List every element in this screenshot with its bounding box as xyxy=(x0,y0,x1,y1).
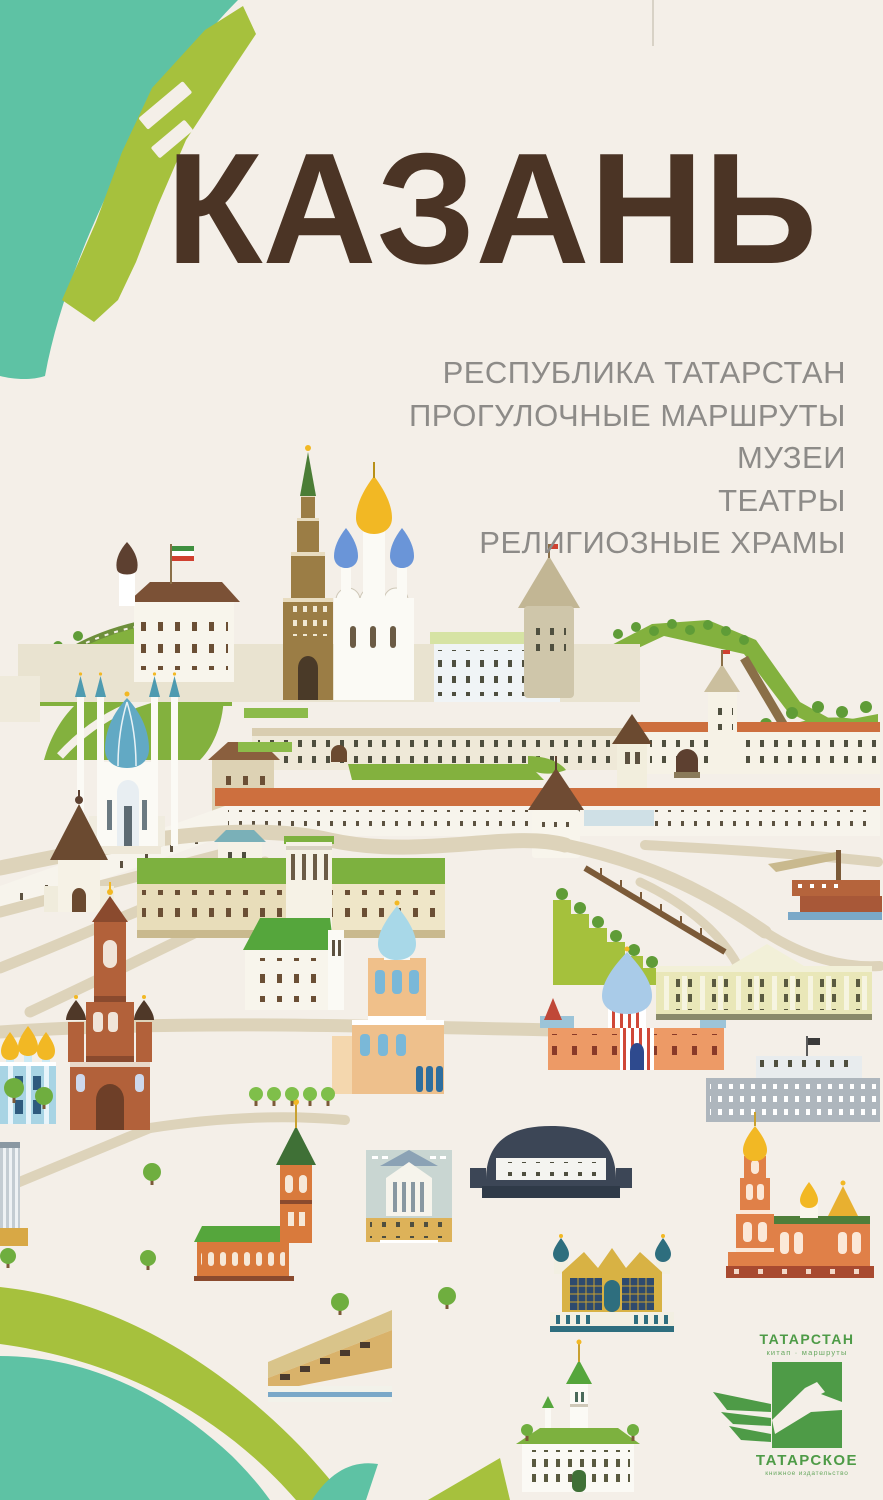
publisher-series-title: ТАТАРСТАН xyxy=(705,1331,883,1347)
governor-palace xyxy=(116,542,240,682)
gold-dome-icon xyxy=(800,1182,818,1208)
city-hall-white-building xyxy=(243,918,344,1010)
book-cover: { "cover": { "title": "КАЗАНЬ", "subtitl… xyxy=(0,0,883,1500)
publisher-series-subtitle: китап · маршруты xyxy=(705,1348,883,1357)
white-corner-tower xyxy=(704,650,740,764)
kamal-theatre xyxy=(268,1310,392,1402)
old-town-hall xyxy=(516,1340,640,1493)
government-house xyxy=(706,1036,880,1122)
gold-dome-icon xyxy=(356,476,392,534)
stone-round-tower xyxy=(518,544,580,698)
subtitle-line: ПРОГУЛОЧНЫЕ МАРШРУТЫ xyxy=(409,395,846,438)
publisher-name: ТАТАРСКОЕ xyxy=(705,1452,883,1469)
subtitle-line: РЕСПУБЛИКА ТАТАРСТАН xyxy=(409,352,846,395)
subtitle-line: ТЕАТРЫ xyxy=(409,480,846,523)
opera-ballet-theatre xyxy=(366,1150,452,1243)
orange-church-bell-tower xyxy=(726,1112,874,1278)
page-title: КАЗАНЬ xyxy=(166,130,817,288)
subtitle-line: МУЗЕИ xyxy=(409,437,846,480)
publisher-name-subtitle: книжное издательство xyxy=(705,1470,883,1477)
publisher-bird-icon xyxy=(705,1362,883,1448)
subtitle-line: РЕЛИГИОЗНЫЕ ХРАМЫ xyxy=(409,522,846,565)
cream-classical-building xyxy=(656,944,872,1020)
publisher-logo: ТАТАРСТАН китап · маршруты ТАТАРСКОЕ кни… xyxy=(705,1331,883,1477)
kremlin-long-building xyxy=(252,722,880,774)
kaban-lake-map xyxy=(0,1287,510,1500)
lime-terrace-steps xyxy=(553,888,668,985)
annunciation-cathedral xyxy=(334,462,414,700)
ncc-tower-partial xyxy=(0,1142,28,1246)
subtitle-block: РЕСПУБЛИКА ТАТАРСТАН ПРОГУЛОЧНЫЕ МАРШРУТ… xyxy=(409,352,846,565)
blue-church-gold-domes xyxy=(0,1026,56,1124)
blue-dome-icon xyxy=(334,528,358,568)
gold-dome-icon xyxy=(743,1126,767,1161)
tatarstan-flag xyxy=(172,546,194,561)
orange-church-green-roof xyxy=(194,1099,316,1281)
scan-crease xyxy=(652,0,654,46)
concert-hall xyxy=(470,1126,632,1198)
soyembika-tower xyxy=(283,445,333,700)
ornamental-mosque xyxy=(550,1234,674,1332)
